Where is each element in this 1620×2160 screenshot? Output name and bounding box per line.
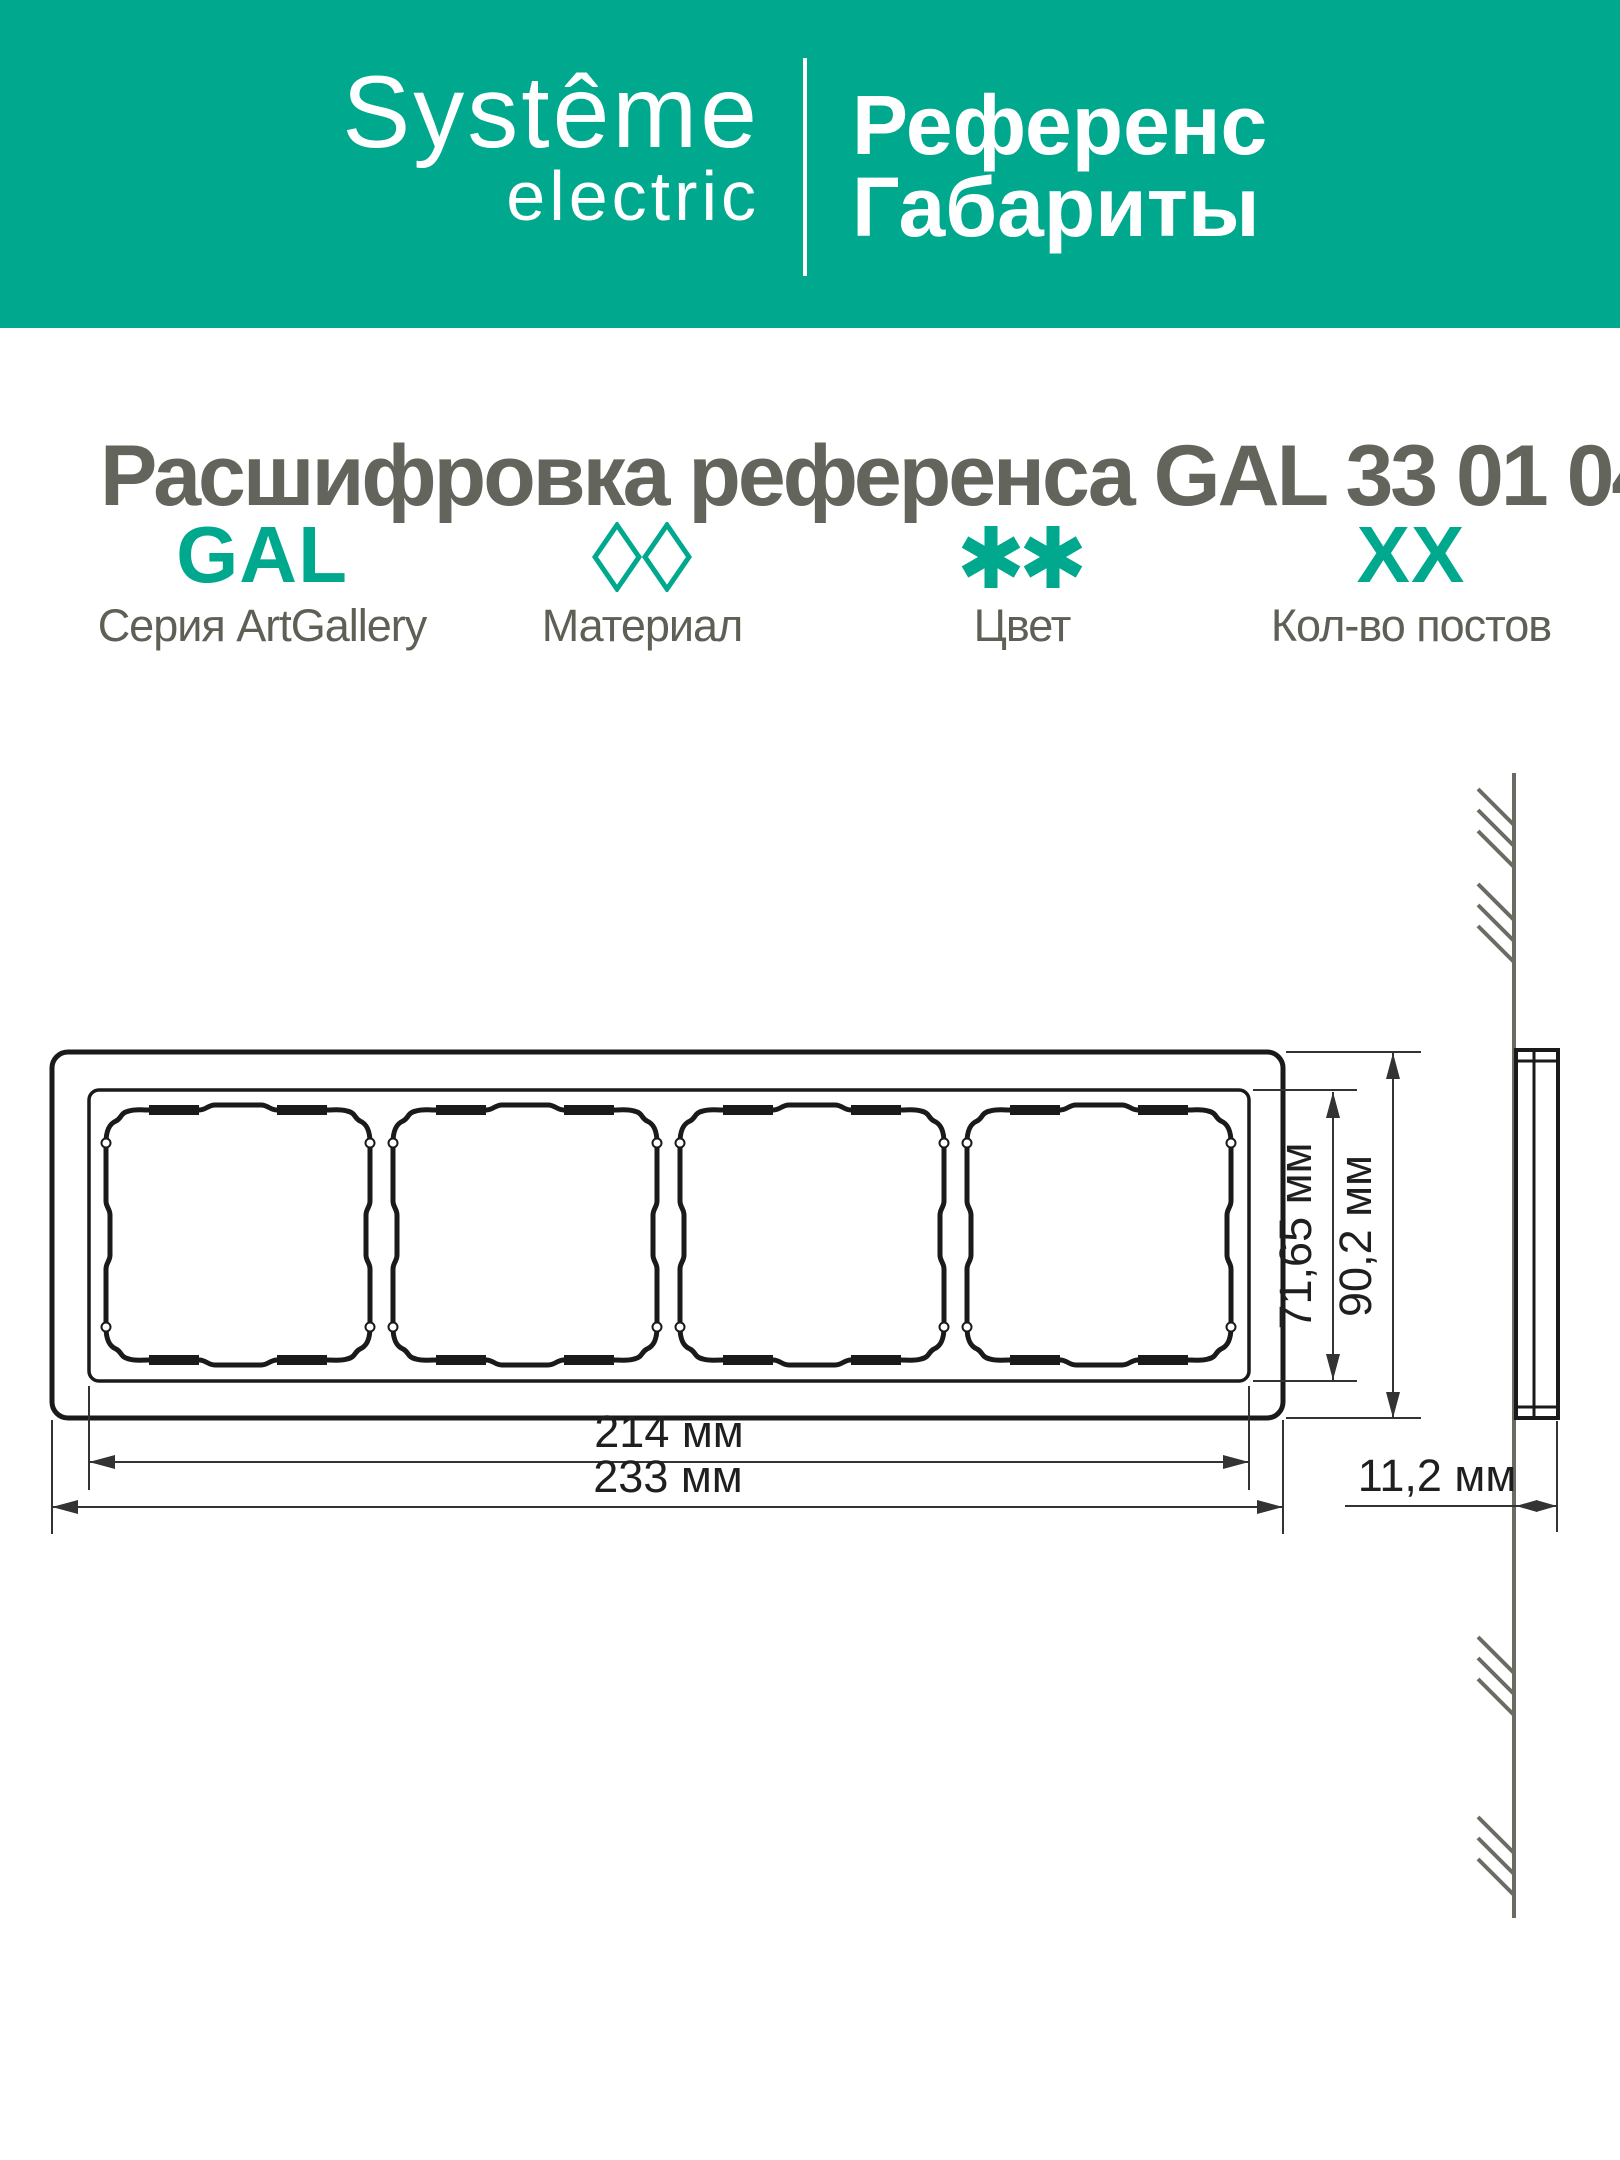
wall-section	[1478, 773, 1514, 1918]
dim-width-outer-label: 233 мм	[593, 1451, 742, 1502]
page: Systême electric Референс Габариты Расши…	[0, 0, 1620, 2160]
dim-width-inner-label: 214 мм	[594, 1406, 743, 1457]
frame-side-view	[1516, 1050, 1558, 1418]
wall-hatch-bottom	[1478, 1637, 1514, 1895]
dimension-drawing: 214 мм 233 мм 71,65 мм 90,2 мм	[0, 0, 1620, 2160]
dim-depth-label: 11,2 мм	[1358, 1450, 1517, 1501]
dim-depth: 11,2 мм	[1345, 1450, 1557, 1512]
dim-height-outer: 90,2 мм	[1330, 1053, 1400, 1418]
wall-hatch-top	[1478, 789, 1514, 962]
dim-width-outer: 233 мм	[52, 1451, 1283, 1514]
frame-front-view	[52, 1052, 1283, 1418]
dim-height-inner-label: 71,65 мм	[1270, 1143, 1321, 1330]
dim-height-outer-label: 90,2 мм	[1330, 1155, 1381, 1317]
